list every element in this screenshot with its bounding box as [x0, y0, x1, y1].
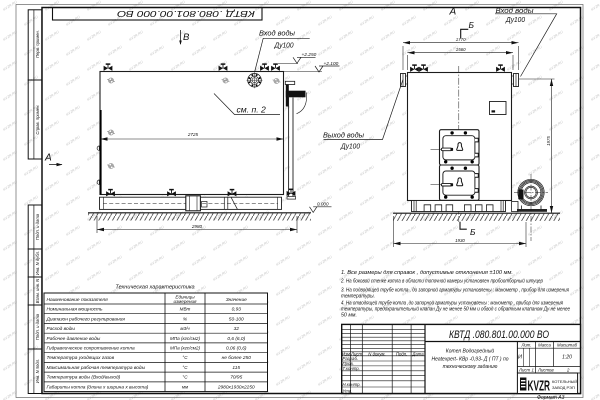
svg-text:+2.250: +2.250: [302, 52, 317, 58]
svg-text:N докум.: N докум.: [368, 352, 385, 357]
svg-text:Вход воды: Вход воды: [259, 28, 296, 37]
svg-text:Утв.: Утв.: [343, 388, 353, 393]
svg-text:3. На подводящей трубе котла: 3. На подводящей трубе котла , до запорн…: [341, 286, 569, 293]
svg-text:В: В: [183, 32, 190, 43]
svg-text:КОТЕЛЬНЫЙ: КОТЕЛЬНЫЙ: [552, 379, 577, 384]
svg-text:Температура воды (Вход/выход): Температура воды (Вход/выход): [47, 375, 121, 381]
svg-text:Подп. и дата: Подп. и дата: [35, 213, 40, 240]
svg-text:Подп.: Подп.: [396, 352, 407, 357]
svg-text:Выход воды: Выход воды: [323, 130, 365, 139]
svg-text:КВТД .080.801.00.000 ВО: КВТД .080.801.00.000 ВО: [117, 9, 255, 18]
svg-text:2. На боковой стенке котла в: 2. На боковой стенке котла в области топ…: [340, 278, 543, 285]
svg-text:Лит.: Лит.: [520, 343, 531, 348]
svg-text:МПа (кгс/см2): МПа (кгс/см2): [170, 346, 200, 351]
svg-text:Габариты котла (длина х ширина: Габариты котла (длина х ширина х высота): [47, 384, 149, 390]
svg-text:Наименование показателя: Наименование показателя: [47, 297, 109, 303]
svg-text:0,06 (0,6): 0,06 (0,6): [226, 346, 247, 352]
svg-text:измерения: измерения: [174, 299, 198, 304]
svg-text:техническому заданию: техническому заданию: [443, 364, 498, 370]
svg-text:А: А: [44, 153, 52, 164]
svg-text:°С: °С: [182, 355, 188, 360]
svg-text:Гидравлическое сопротивление к: Гидравлическое сопротивление котла: [47, 346, 135, 352]
svg-text:Рабочее давление воды: Рабочее давление воды: [47, 336, 101, 342]
svg-text:Подп. и дата: Подп. и дата: [35, 313, 40, 340]
svg-text:50 мм.: 50 мм.: [341, 313, 357, 319]
svg-text:2980х1930х2250: 2980х1930х2250: [217, 384, 255, 390]
svg-text:Лист: Лист: [518, 368, 530, 373]
svg-text:Диапазон рабочего регулировани: Диапазон рабочего регулирования: [46, 316, 126, 322]
svg-text:Листов: Листов: [537, 368, 554, 373]
svg-text:Котел Водогрейный: Котел Водогрейный: [446, 347, 495, 354]
svg-text:КВТД .080.801.00.000 ВО: КВТД .080.801.00.000 ВО: [449, 329, 549, 341]
svg-text:%: %: [183, 316, 187, 321]
svg-text:Heatexpert- КВр -0,93- Д ( ПТ: Heatexpert- КВр -0,93- Д ( ПТ ) по: [431, 356, 508, 362]
svg-text:50-100: 50-100: [229, 316, 244, 322]
svg-text:Формат А3: Формат А3: [537, 395, 565, 400]
svg-text:4. На отводящей трубе котла ,: 4. На отводящей трубе котла ,до запорной…: [341, 299, 563, 306]
svg-text:+2.100: +2.100: [324, 61, 339, 67]
svg-text:2725: 2725: [187, 132, 199, 137]
svg-text:Максимальная рабочая температу: Максимальная рабочая температура воды: [47, 365, 146, 371]
svg-text:Масштаб: Масштаб: [557, 343, 578, 348]
svg-text:Температура уходящих газов: Температура уходящих газов: [47, 355, 115, 361]
svg-text:115: 115: [232, 365, 240, 371]
svg-text:KVZR: KVZR: [528, 377, 551, 394]
svg-text:мм: мм: [182, 384, 189, 389]
svg-text:Б: Б: [470, 227, 476, 237]
svg-text:Т.контр.: Т.контр.: [343, 366, 360, 371]
svg-text:МВт: МВт: [180, 307, 191, 312]
svg-text:см. п. 2: см. п. 2: [237, 105, 266, 115]
svg-text:Номинальная мощность: Номинальная мощность: [47, 307, 104, 313]
svg-text:°С: °С: [182, 375, 188, 380]
svg-text:32: 32: [234, 326, 240, 332]
svg-text:Взам. инв. N: Взам. инв. N: [35, 278, 40, 303]
svg-text:м3/ч: м3/ч: [180, 326, 190, 331]
svg-text:Ду100: Ду100: [340, 142, 361, 151]
svg-text:Масса: Масса: [538, 343, 551, 348]
svg-text:температуры.: температуры.: [341, 294, 375, 300]
svg-text:°С: °С: [182, 365, 188, 370]
svg-text:1560: 1560: [456, 47, 466, 52]
svg-text:Расход воды: Расход воды: [47, 326, 76, 332]
svg-text:Перв. примен.: Перв. примен.: [35, 30, 40, 58]
svg-text:не более 250: не более 250: [222, 355, 252, 361]
svg-text:Справ. примен.: Справ. примен.: [35, 104, 40, 134]
svg-text:2980: 2980: [191, 224, 203, 229]
svg-text:0.000: 0.000: [317, 202, 329, 207]
svg-text:Ду100: Ду100: [505, 15, 526, 24]
svg-text:0,93: 0,93: [232, 307, 242, 313]
svg-text:Значение: Значение: [226, 297, 247, 303]
svg-text:Инв. N подл.: Инв. N подл.: [35, 359, 40, 383]
svg-text:ЗАВОД РЭП: ЗАВОД РЭП: [552, 385, 575, 390]
svg-text:Дата: Дата: [411, 352, 424, 357]
svg-text:И: И: [518, 355, 522, 361]
svg-text:1975: 1975: [546, 136, 551, 146]
svg-text:70/95: 70/95: [230, 375, 242, 381]
svg-text:Б: Б: [469, 20, 475, 30]
svg-text:Н.контр.: Н.контр.: [343, 382, 361, 387]
svg-text:Ду100: Ду100: [274, 41, 295, 50]
svg-text:МПа (кгс/см2): МПа (кгс/см2): [170, 336, 200, 341]
svg-text:температуры, предохранительный: температуры, предохранительный клапан Ду…: [341, 305, 570, 312]
svg-text:А: А: [449, 6, 457, 17]
svg-text:Техническая характеристика: Техническая характеристика: [115, 285, 194, 291]
svg-text:1:20: 1:20: [562, 355, 572, 361]
svg-text:Инв. N дубл.: Инв. N дубл.: [35, 251, 40, 275]
svg-text:1. Все размеры для справок ,: 1. Все размеры для справок , допустимые …: [341, 270, 513, 276]
svg-text:0,6 (6,0): 0,6 (6,0): [227, 336, 245, 342]
svg-text:1930: 1930: [455, 238, 465, 243]
